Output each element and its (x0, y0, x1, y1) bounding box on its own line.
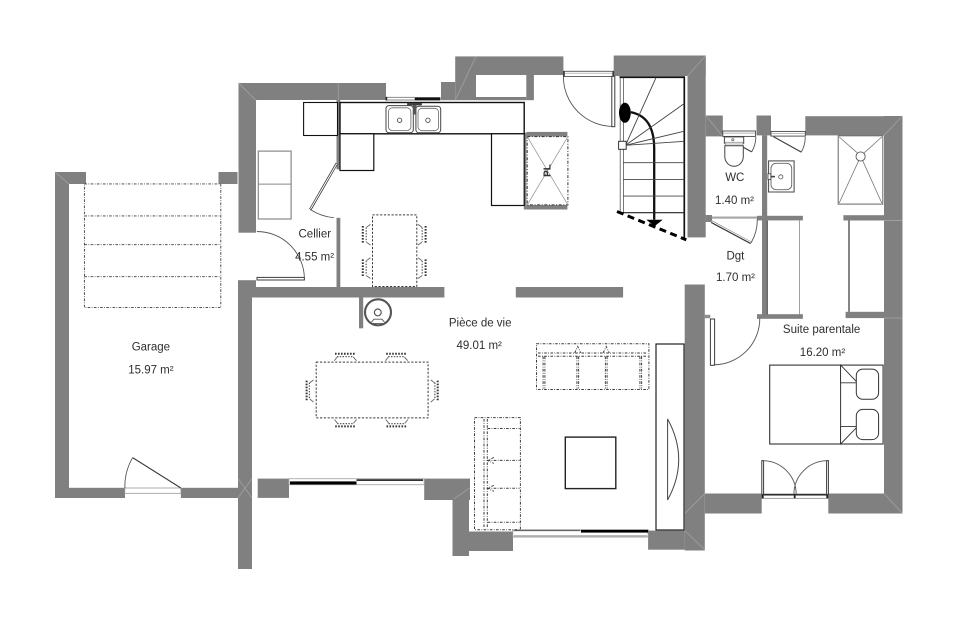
svg-text:49.01 m²: 49.01 m² (457, 340, 503, 352)
svg-text:Pièce de vie: Pièce de vie (449, 318, 512, 330)
svg-text:1.70 m²: 1.70 m² (716, 272, 755, 284)
svg-text:WC: WC (725, 172, 744, 184)
svg-text:15.97 m²: 15.97 m² (128, 365, 174, 377)
svg-text:Garage: Garage (132, 342, 170, 354)
svg-text:16.20 m²: 16.20 m² (800, 347, 846, 359)
svg-text:Dgt: Dgt (726, 250, 745, 262)
svg-text:4.55 m²: 4.55 m² (295, 251, 334, 263)
svg-text:PL: PL (543, 164, 554, 177)
svg-text:Cellier: Cellier (299, 229, 332, 241)
svg-text:Suite parentale: Suite parentale (783, 324, 860, 336)
svg-text:1.40 m²: 1.40 m² (715, 195, 754, 207)
